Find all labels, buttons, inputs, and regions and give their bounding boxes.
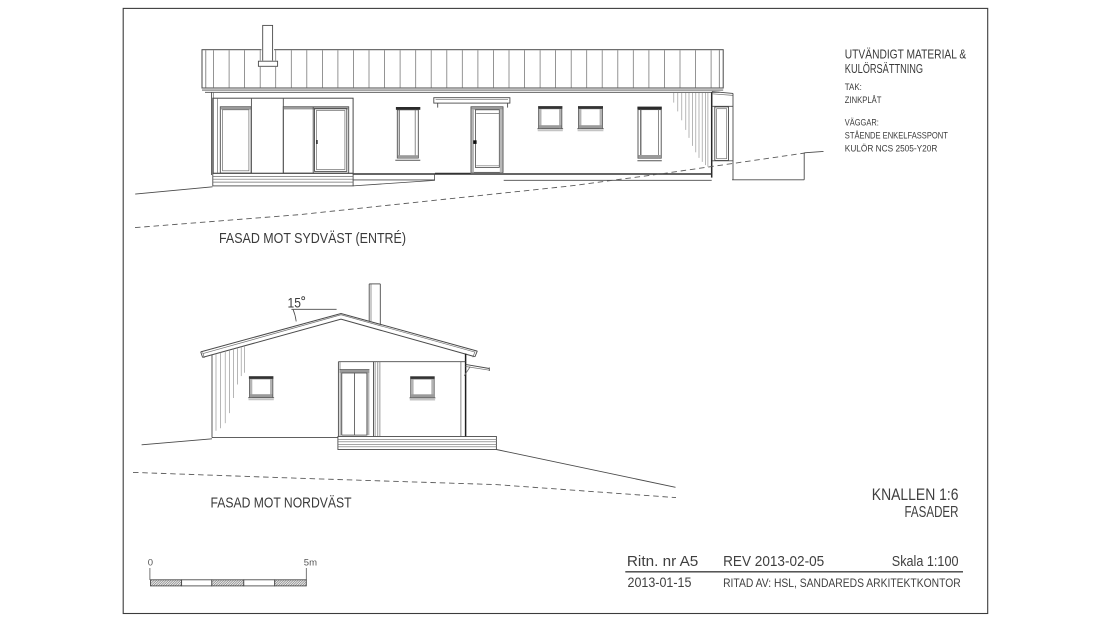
svg-text:FASAD MOT SYDVÄST (ENTRÉ): FASAD MOT SYDVÄST (ENTRÉ) [219,230,406,247]
svg-text:Ritn. nr A5: Ritn. nr A5 [627,553,698,570]
svg-text:KULÖR NCS 2505-Y20R: KULÖR NCS 2505-Y20R [845,143,938,154]
svg-text:RITAD AV: HSL, SANDAREDS ARKIT: RITAD AV: HSL, SANDAREDS ARKITEKTKONTOR [723,576,961,590]
svg-text:REV 2013-02-05: REV 2013-02-05 [723,553,824,570]
svg-text:5m: 5m [304,557,317,568]
svg-text:KNALLEN 1:6: KNALLEN 1:6 [872,485,959,504]
svg-text:0: 0 [148,557,153,568]
svg-text:UTVÄNDIGT MATERIAL &: UTVÄNDIGT MATERIAL & [845,48,967,62]
svg-text:FASAD MOT NORDVÄST: FASAD MOT NORDVÄST [211,495,352,512]
svg-text:15: 15 [288,296,301,311]
svg-text:FASADER: FASADER [905,504,959,521]
svg-text:KULÖRSÄTTNING: KULÖRSÄTTNING [845,62,923,76]
svg-text:2013-01-15: 2013-01-15 [628,575,692,590]
svg-text:Skala 1:100: Skala 1:100 [892,553,959,570]
svg-text:ZINKPLÅT: ZINKPLÅT [845,95,882,106]
svg-text:VÄGGAR:: VÄGGAR: [845,117,879,128]
svg-text:TAK:: TAK: [845,82,862,93]
svg-text:STÅENDE ENKELFASSPONT: STÅENDE ENKELFASSPONT [845,130,948,141]
